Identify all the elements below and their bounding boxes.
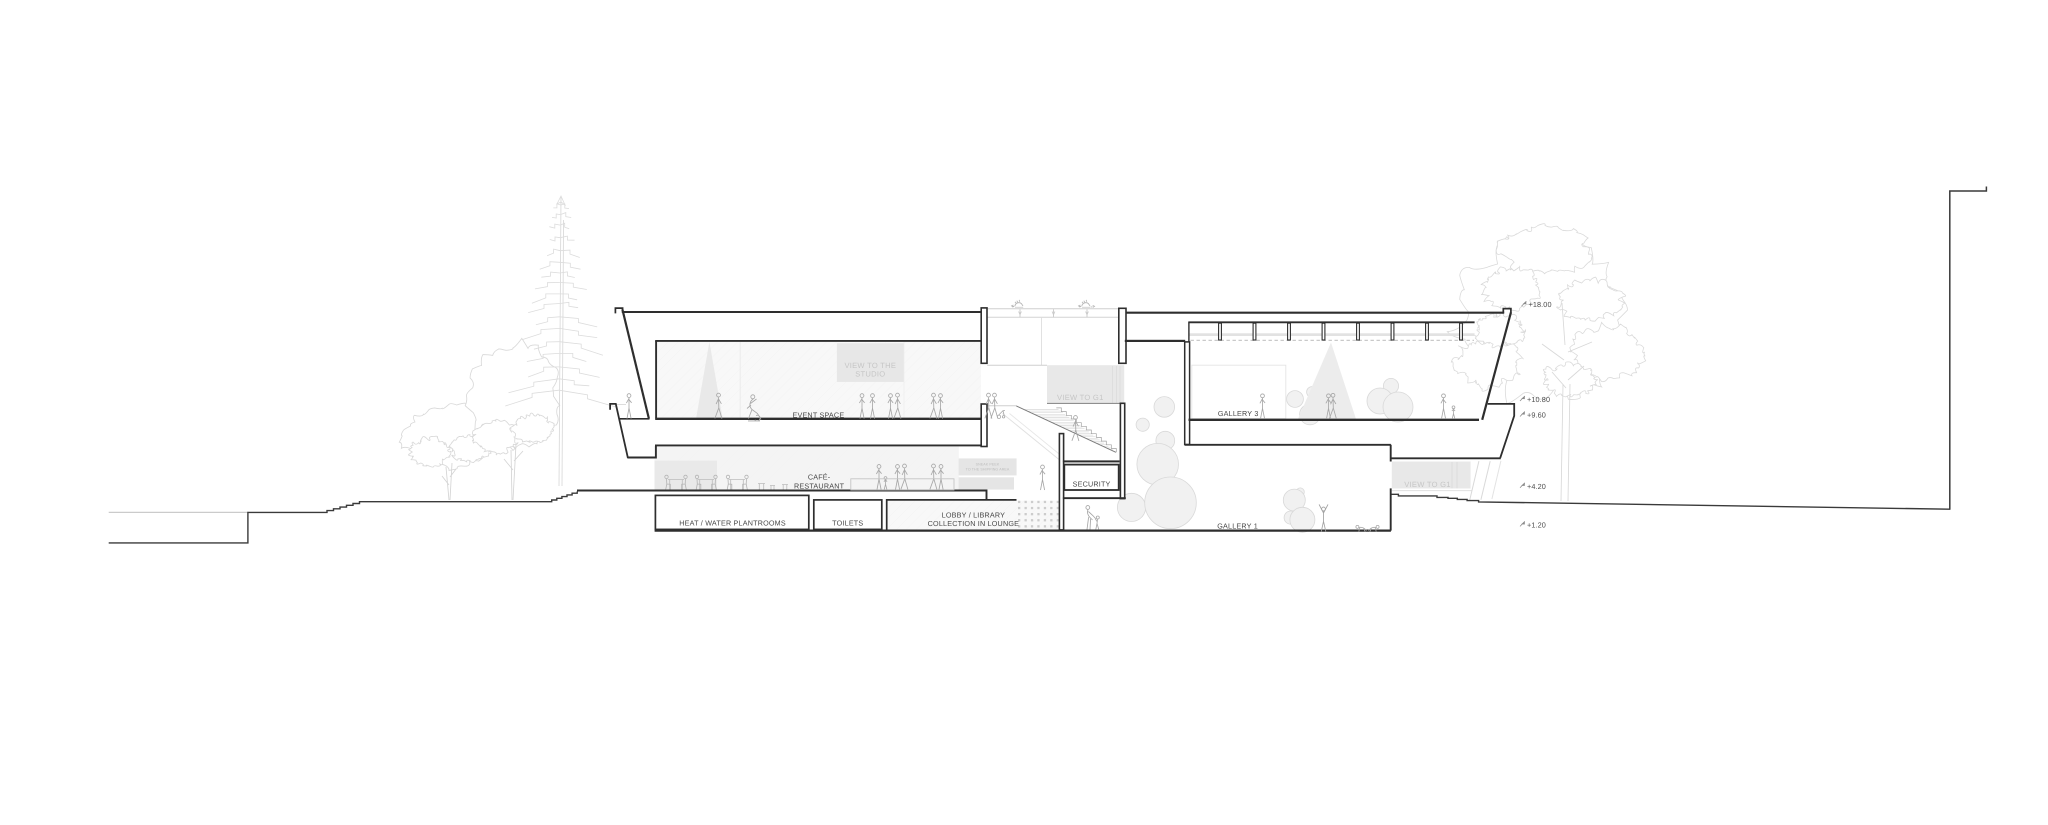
svg-text:STUDIO: STUDIO [855,370,885,379]
svg-text:HEAT / WATER PLANTROOMS: HEAT / WATER PLANTROOMS [679,518,786,527]
svg-text:GALLERY 1: GALLERY 1 [1217,521,1258,530]
svg-text:VIEW TO G1: VIEW TO G1 [1057,393,1104,402]
svg-text:RESTAURANT: RESTAURANT [794,481,845,490]
svg-text:EVENT SPACE: EVENT SPACE [792,410,844,419]
svg-text:+10.80: +10.80 [1527,395,1550,404]
svg-text:+4.20: +4.20 [1527,482,1546,491]
svg-text:+18.00: +18.00 [1529,300,1552,309]
svg-text:VIEW TO G1: VIEW TO G1 [1404,480,1451,489]
svg-text:+9.60: +9.60 [1527,411,1546,420]
svg-text:GALLERY 3: GALLERY 3 [1218,409,1259,418]
svg-text:TOILETS: TOILETS [832,518,863,527]
svg-text:COLLECTION IN LOUNGE: COLLECTION IN LOUNGE [928,519,1019,528]
svg-text:TO THE SHIPPING AREA: TO THE SHIPPING AREA [966,467,1010,471]
svg-text:VIEW TO THE: VIEW TO THE [844,361,896,370]
svg-text:+1.20: +1.20 [1527,520,1546,529]
svg-text:SECURITY: SECURITY [1073,480,1111,489]
svg-text:SNEAK PEEK: SNEAK PEEK [976,462,1000,466]
svg-text:CAFÉ-: CAFÉ- [808,473,831,482]
